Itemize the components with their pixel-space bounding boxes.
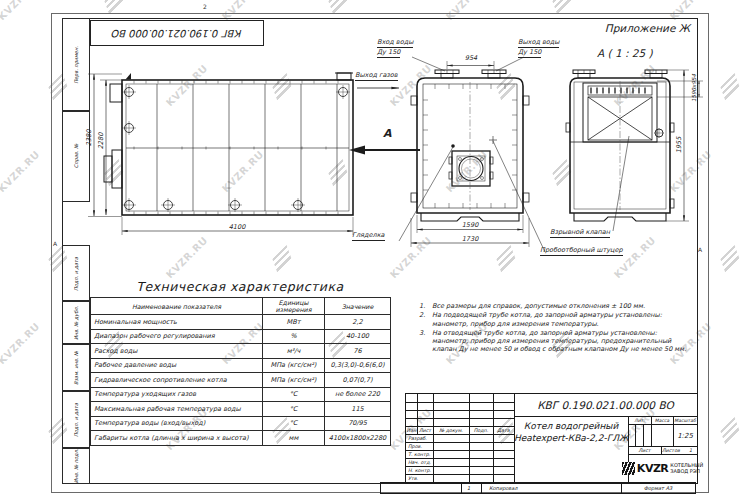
tech-table-cell: Номинальная мощность: [91, 315, 263, 330]
tech-col-name: Наименование показателя: [91, 298, 263, 315]
tech-table-row: Диапазон рабочего регулирования%40-100: [91, 329, 391, 344]
water-outlet-line1: Выход воды: [518, 38, 559, 48]
water-outlet-line2: Ду 150: [518, 48, 541, 58]
tech-table-cell: Рабочее давление воды: [91, 358, 263, 373]
tech-table-row: Рабочее давление водыМПа (кгс/см²)0,3(3,…: [91, 358, 391, 373]
note-item: 2.На подводящей трубе котла, до запорной…: [418, 311, 690, 328]
gas-outlet-text: Выход газов: [355, 71, 398, 81]
dim-flue-size: 1590х954: [691, 66, 697, 110]
tech-table-cell: 4100х1800х2280: [325, 431, 391, 446]
section-arrow-letter: А: [383, 127, 392, 140]
water-outlet-label: Выход воды Ду 150: [518, 38, 559, 58]
tech-table-cell: мм: [263, 431, 325, 446]
tb-designation: КВГ 0.190.021.00.000 ВО: [514, 399, 697, 411]
tb-lit-label: Лит.: [628, 418, 651, 423]
kvzr-logo-text: KVZR: [637, 462, 668, 475]
sight-glass-text: Гляделка: [352, 231, 385, 241]
tb-sheets-value: 1: [689, 448, 692, 453]
note-item: 1.Все размеры для справок, допустимые от…: [418, 302, 690, 310]
tb-row-utv: Утв.: [408, 476, 418, 481]
explosion-valve-text: Взрывной клапан: [550, 228, 610, 238]
tech-table-row: Расход водым³/ч76: [91, 344, 391, 359]
tb-col-podp: Подп.: [469, 428, 493, 433]
tech-table-cell: 70/95: [325, 416, 391, 431]
tech-table-cell: 76: [325, 344, 391, 359]
tech-table-cell: м³/ч: [263, 344, 325, 359]
gas-outlet-label: Выход газов: [355, 71, 398, 81]
tb-product-name-2: Heatexpert-КВа-2,2-ГЛЖ: [514, 433, 628, 443]
tech-table-cell: Диапазон рабочего регулирования: [91, 329, 263, 344]
tb-sheets-label: Листов: [662, 448, 680, 453]
tech-table-cell: Максимальная рабочая температура воды: [91, 402, 263, 417]
water-inlet-line2: Ду 150: [377, 48, 400, 58]
tech-table-row: Температура воды (вход/выход)°С70/95: [91, 416, 391, 431]
tech-table-cell: Гидравлическое сопротивление котла: [91, 373, 263, 388]
sampling-port-text: Пробоотборный штуцер: [540, 246, 623, 256]
tech-table-cell: Температура уходящих газов: [91, 387, 263, 402]
company-name: КОТЕЛЬНЫЙ ЗАВОД РЭП: [670, 463, 703, 474]
tb-scale-label: Масштаб: [673, 418, 697, 423]
tech-table-cell: не более 220: [325, 387, 391, 402]
tech-table-cell: °С: [263, 402, 325, 417]
tech-table-cell: %: [263, 329, 325, 344]
tb-col-izm: Изм: [406, 428, 417, 433]
water-inlet-line1: Вход воды: [377, 38, 413, 48]
tech-table-row: Температура уходящих газов°Сне более 220: [91, 387, 391, 402]
tech-table-cell: Температура воды (вход/выход): [91, 416, 263, 431]
bottom-strip: 1 Копировал Формат А3: [380, 482, 696, 494]
tech-table-cell: Расход воды: [91, 344, 263, 359]
sight-glass-label: Гляделка: [352, 231, 385, 241]
tech-table-cell: МПа (кгс/см²): [263, 373, 325, 388]
kvzr-logo-icon: [622, 462, 635, 475]
tb-row-razrab: Разраб.: [408, 436, 427, 441]
tech-table-cell: Габариты котла (длинна х ширина х высота…: [91, 431, 263, 446]
tb-product-name-1: Котел водогрейный: [514, 421, 628, 431]
tech-table-row: Гидравлическое сопротивление котлаМПа (к…: [91, 373, 391, 388]
tb-col-data: Дата: [493, 428, 514, 433]
dim-front-width-outer: 1730: [450, 235, 490, 243]
appendix-label: Приложение Ж: [592, 22, 690, 34]
tech-col-value: Значение: [325, 298, 391, 315]
tech-table-cell: 40-100: [325, 329, 391, 344]
company-name-line2: ЗАВОД РЭП: [670, 469, 703, 475]
tech-table-cell: МВт: [263, 315, 325, 330]
dim-nozzle-spacing: 954: [452, 54, 490, 62]
tech-characteristics: Техническая характеристика Наименование …: [90, 279, 390, 446]
tech-table-cell: 2,2: [325, 315, 391, 330]
tech-table-cell: 115: [325, 402, 391, 417]
dim-front-width-inner: 1590: [450, 221, 490, 229]
title-block: Изм Лист № докум. Подп. Дата Разраб. Про…: [405, 393, 698, 484]
dim-side-height-outer: 2380: [85, 118, 93, 158]
notes-list: 1.Все размеры для справок, допустимые от…: [418, 302, 690, 355]
tech-table-row: Габариты котла (длинна х ширина х высота…: [91, 431, 391, 446]
tech-table-cell: 0,3(3,0)-0,6(6,0): [325, 358, 391, 373]
tb-scale-value: 1:25: [673, 432, 697, 440]
tech-table-cell: МПа (кгс/см²): [263, 358, 325, 373]
dim-side-height-inner: 2280: [97, 121, 105, 161]
tb-sheet-label: Лист: [628, 448, 661, 453]
strip-copy-zone: 1: [467, 485, 470, 491]
dim-side-length: 4100: [217, 223, 257, 231]
tb-row-tkontr: Т. контр.: [408, 452, 430, 457]
tech-table-title: Техническая характеристика: [90, 279, 390, 294]
tech-table-row: Максимальная рабочая температура воды°С1…: [91, 402, 391, 417]
drawing-sheet: KVZR.RUKVZR.RUKVZR.RUKVZR.RUKVZR.RUKVZR.…: [0, 0, 750, 500]
tb-col-list: Лист: [417, 428, 433, 433]
tb-col-doc: № докум.: [433, 428, 469, 433]
tech-table-cell: 0,07(0,7): [325, 373, 391, 388]
strip-format-label: Формат А3: [621, 485, 695, 491]
water-inlet-label: Вход воды Ду 150: [377, 38, 413, 58]
tech-table: Наименование показателя Единицы измерени…: [90, 297, 391, 446]
tb-row-nkontr: Н. контр.: [408, 468, 431, 473]
section-view-title: А ( 1 : 25 ): [597, 47, 653, 59]
strip-copied-label: Копировал: [489, 485, 518, 491]
tb-row-prov: Пров.: [408, 444, 422, 449]
explosion-valve-label: Взрывной клапан: [550, 228, 610, 238]
sampling-port-label: Пробоотборный штуцер: [540, 246, 623, 256]
tb-mass-label: Масса: [651, 418, 673, 423]
dim-section-height: 1955: [675, 125, 683, 165]
tech-col-units: Единицы измерения: [263, 298, 325, 315]
tech-table-cell: °С: [263, 387, 325, 402]
tech-table-cell: °С: [263, 416, 325, 431]
company-logo-block: KVZR КОТЕЛЬНЫЙ ЗАВОД РЭП: [629, 455, 696, 482]
tech-table-row: Номинальная мощностьМВт2,2: [91, 315, 391, 330]
note-item: 3.На отводящей трубе котла, до запорной …: [418, 329, 690, 354]
tb-row-nachotd: Нач. отд.: [408, 460, 431, 465]
